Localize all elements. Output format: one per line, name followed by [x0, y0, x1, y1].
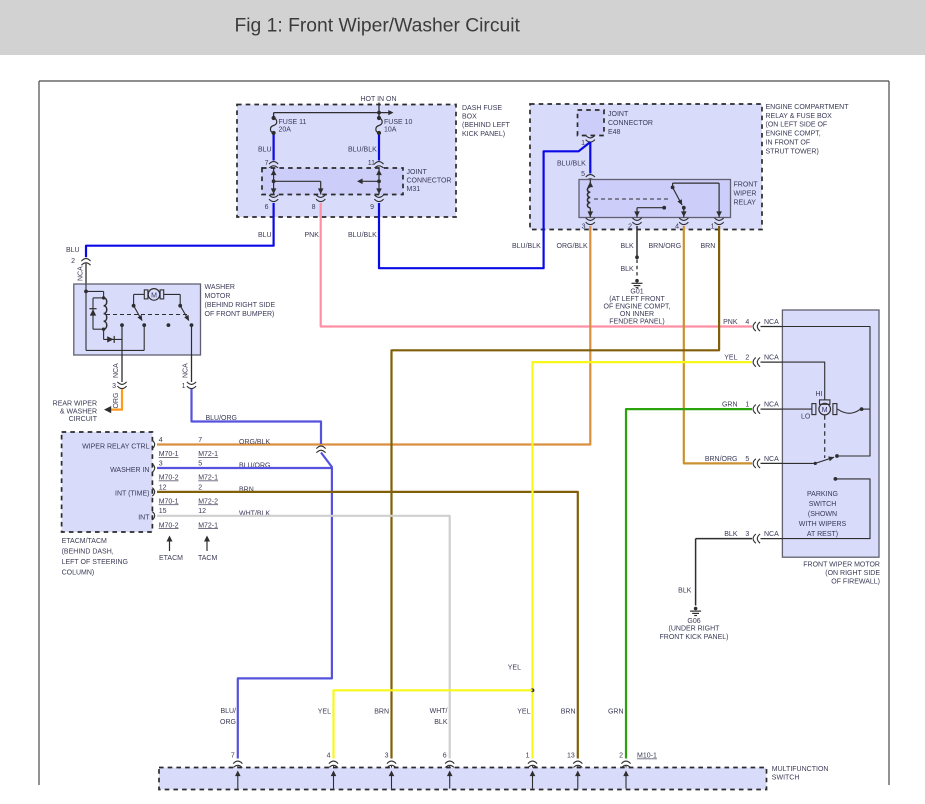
svg-text:BRN: BRN — [701, 243, 716, 250]
svg-text:4: 4 — [159, 437, 163, 444]
svg-text:HOT IN ON: HOT IN ON — [360, 96, 396, 103]
svg-text:INT: INT — [138, 515, 150, 522]
svg-text:(ON LEFT SIDE OF: (ON LEFT SIDE OF — [766, 122, 828, 129]
svg-text:ORG: ORG — [113, 393, 120, 409]
svg-text:CIRCUIT: CIRCUIT — [69, 416, 98, 423]
svg-text:YEL: YEL — [724, 355, 737, 362]
svg-text:M70-2: M70-2 — [159, 475, 179, 482]
svg-text:BLK: BLK — [621, 243, 635, 250]
svg-text:M72-1: M72-1 — [198, 475, 218, 482]
svg-text:10A: 10A — [384, 127, 397, 134]
svg-text:M: M — [822, 407, 828, 414]
svg-text:HI: HI — [816, 391, 823, 398]
svg-text:(BEHIND LEFT: (BEHIND LEFT — [462, 122, 511, 129]
svg-text:ENGINE COMPT,: ENGINE COMPT, — [766, 131, 821, 138]
svg-text:FUSE 10: FUSE 10 — [384, 119, 413, 126]
svg-text:9: 9 — [370, 204, 374, 211]
svg-text:FRONT WIPER MOTOR: FRONT WIPER MOTOR — [803, 562, 880, 569]
svg-text:20A: 20A — [279, 127, 292, 134]
svg-text:1: 1 — [745, 402, 749, 409]
svg-text:WIPER: WIPER — [734, 191, 757, 198]
svg-text:(BEHIND RIGHT SIDE: (BEHIND RIGHT SIDE — [205, 302, 276, 309]
svg-text:BRN: BRN — [561, 709, 576, 716]
svg-text:1: 1 — [711, 224, 715, 231]
svg-text:4: 4 — [745, 319, 749, 326]
svg-text:FRONT: FRONT — [734, 182, 759, 189]
svg-text:OF FIREWALL): OF FIREWALL) — [831, 579, 880, 586]
svg-text:BLU: BLU — [66, 247, 80, 254]
svg-text:IN FRONT OF: IN FRONT OF — [766, 139, 811, 146]
svg-text:13: 13 — [567, 753, 575, 760]
svg-text:7: 7 — [265, 160, 269, 167]
svg-text:12: 12 — [159, 484, 167, 491]
svg-text:M72-1: M72-1 — [198, 522, 218, 529]
svg-text:TACM: TACM — [198, 555, 217, 562]
svg-text:3: 3 — [582, 224, 586, 231]
svg-text:BRN: BRN — [374, 709, 389, 716]
svg-text:6: 6 — [265, 204, 269, 211]
svg-text:RELAY & FUSE BOX: RELAY & FUSE BOX — [766, 113, 833, 120]
svg-text:DASH FUSE: DASH FUSE — [462, 105, 502, 112]
svg-text:4: 4 — [675, 224, 679, 231]
svg-text:2: 2 — [198, 484, 202, 491]
svg-text:COLUMN): COLUMN) — [62, 570, 95, 577]
svg-text:BLK: BLK — [724, 531, 738, 538]
svg-text:FENDER PANEL): FENDER PANEL) — [609, 318, 665, 325]
svg-text:BRN/ORG: BRN/ORG — [649, 243, 682, 250]
svg-text:PNK: PNK — [305, 232, 320, 239]
svg-text:BRN/ORG: BRN/ORG — [705, 456, 738, 463]
svg-text:3: 3 — [385, 753, 389, 760]
svg-text:NCA: NCA — [764, 531, 779, 538]
svg-text:1: 1 — [526, 753, 530, 760]
svg-text:5: 5 — [198, 460, 202, 467]
svg-text:ENGINE COMPARTMENT: ENGINE COMPARTMENT — [766, 104, 850, 111]
svg-text:1: 1 — [581, 140, 585, 147]
svg-text:JOINT: JOINT — [407, 169, 428, 176]
svg-text:2: 2 — [628, 224, 632, 231]
svg-text:CONNECTOR: CONNECTOR — [608, 120, 653, 127]
svg-text:KICK PANEL): KICK PANEL) — [462, 131, 505, 138]
svg-text:WASHER IN: WASHER IN — [110, 467, 149, 474]
svg-text:3: 3 — [112, 383, 116, 390]
svg-text:Fig 1: Front Wiper/Washer Circ: Fig 1: Front Wiper/Washer Circuit — [235, 16, 521, 37]
svg-text:NCA: NCA — [764, 402, 779, 409]
svg-text:15: 15 — [159, 508, 167, 515]
svg-text:INT (TIME): INT (TIME) — [115, 491, 149, 498]
svg-text:BLK: BLK — [678, 588, 692, 595]
svg-text:ORG: ORG — [220, 719, 236, 726]
svg-text:2: 2 — [71, 258, 75, 265]
svg-text:M70-1: M70-1 — [159, 498, 179, 505]
svg-text:YEL: YEL — [508, 665, 521, 672]
svg-text:NCA: NCA — [113, 363, 120, 378]
svg-text:ON INNER: ON INNER — [620, 311, 654, 318]
svg-text:M72-1: M72-1 — [198, 451, 218, 458]
svg-text:5: 5 — [745, 456, 749, 463]
svg-text:3: 3 — [159, 460, 163, 467]
svg-text:WASHER: WASHER — [205, 284, 235, 291]
svg-text:M72-2: M72-2 — [198, 498, 218, 505]
svg-text:YEL: YEL — [517, 709, 530, 716]
svg-text:YEL: YEL — [318, 709, 331, 716]
svg-text:OF ENGINE COMPT,: OF ENGINE COMPT, — [604, 303, 671, 310]
svg-text:M31: M31 — [407, 186, 421, 193]
svg-text:7: 7 — [198, 437, 202, 444]
svg-text:GRN: GRN — [608, 709, 624, 716]
svg-text:LEFT OF STEERING: LEFT OF STEERING — [62, 559, 128, 566]
svg-text:BLU/ORG: BLU/ORG — [206, 415, 238, 422]
svg-text:M70-2: M70-2 — [159, 522, 179, 529]
svg-text:M10-1: M10-1 — [637, 753, 657, 760]
svg-text:GRN: GRN — [722, 402, 738, 409]
svg-text:WITH WIPERS: WITH WIPERS — [799, 521, 847, 528]
svg-text:NCA: NCA — [764, 355, 779, 362]
svg-text:1: 1 — [182, 383, 186, 390]
svg-text:ORG/BLK: ORG/BLK — [239, 439, 270, 446]
svg-text:NCA: NCA — [183, 363, 190, 378]
svg-text:SWITCH: SWITCH — [772, 775, 800, 782]
svg-text:PNK: PNK — [723, 319, 738, 326]
svg-text:4: 4 — [327, 753, 331, 760]
svg-text:11: 11 — [368, 160, 375, 167]
svg-text:(AT LEFT FRONT: (AT LEFT FRONT — [609, 296, 665, 303]
svg-text:BLU/BLK: BLU/BLK — [348, 147, 377, 154]
svg-text:G06: G06 — [687, 618, 700, 625]
svg-text:BLK: BLK — [621, 266, 635, 273]
svg-text:NCA: NCA — [764, 319, 779, 326]
svg-text:FUSE 11: FUSE 11 — [279, 119, 307, 126]
svg-text:NCA: NCA — [764, 456, 779, 463]
svg-text:7: 7 — [231, 753, 235, 760]
svg-text:BLU/BLK: BLU/BLK — [557, 161, 586, 168]
svg-text:OF FRONT BUMPER): OF FRONT BUMPER) — [205, 311, 275, 318]
svg-text:(BEHIND DASH,: (BEHIND DASH, — [62, 549, 114, 556]
svg-text:& WASHER: & WASHER — [60, 408, 97, 415]
svg-text:2: 2 — [745, 355, 749, 362]
svg-text:BOX: BOX — [462, 114, 477, 121]
svg-text:WHT/: WHT/ — [430, 708, 448, 715]
svg-text:(UNDER RIGHT: (UNDER RIGHT — [669, 626, 721, 633]
svg-text:NCA: NCA — [78, 266, 85, 281]
svg-text:PARKING: PARKING — [807, 491, 838, 498]
svg-text:E48: E48 — [608, 129, 621, 136]
svg-text:SWITCH: SWITCH — [809, 501, 837, 508]
svg-text:WIPER RELAY CTRL: WIPER RELAY CTRL — [82, 443, 150, 450]
svg-text:(SHOWN: (SHOWN — [808, 511, 837, 518]
svg-text:BLU/BLK: BLU/BLK — [512, 243, 541, 250]
svg-text:12: 12 — [198, 508, 206, 515]
svg-text:ORG/BLK: ORG/BLK — [557, 243, 588, 250]
svg-text:CONNECTOR: CONNECTOR — [407, 178, 452, 185]
svg-text:M: M — [151, 292, 157, 299]
svg-text:BLK: BLK — [434, 719, 448, 726]
svg-text:ETACM: ETACM — [159, 555, 183, 562]
svg-text:M70-1: M70-1 — [159, 451, 179, 458]
svg-text:FRONT KICK PANEL): FRONT KICK PANEL) — [660, 634, 729, 641]
svg-text:6: 6 — [443, 753, 447, 760]
svg-text:2: 2 — [619, 753, 623, 760]
svg-text:RELAY: RELAY — [734, 200, 757, 207]
svg-text:BLU/: BLU/ — [220, 708, 236, 715]
svg-text:3: 3 — [745, 531, 749, 538]
svg-text:REAR WIPER: REAR WIPER — [53, 401, 97, 408]
svg-text:BLU/BLK: BLU/BLK — [348, 232, 377, 239]
svg-text:5: 5 — [581, 171, 585, 178]
svg-text:BLU: BLU — [258, 232, 272, 239]
svg-text:AT REST): AT REST) — [807, 531, 838, 538]
svg-text:JOINT: JOINT — [608, 111, 629, 118]
svg-text:LO: LO — [801, 414, 811, 421]
svg-text:(ON RIGHT SIDE: (ON RIGHT SIDE — [825, 570, 880, 577]
svg-text:ETACM/TACM: ETACM/TACM — [62, 538, 107, 545]
svg-text:STRUT TOWER): STRUT TOWER) — [766, 148, 819, 155]
svg-text:8: 8 — [312, 204, 316, 211]
svg-text:G01: G01 — [630, 288, 643, 295]
svg-text:BLU: BLU — [258, 147, 272, 154]
svg-text:MOTOR: MOTOR — [205, 293, 231, 300]
svg-text:MULTIFUNCTION: MULTIFUNCTION — [772, 766, 829, 773]
